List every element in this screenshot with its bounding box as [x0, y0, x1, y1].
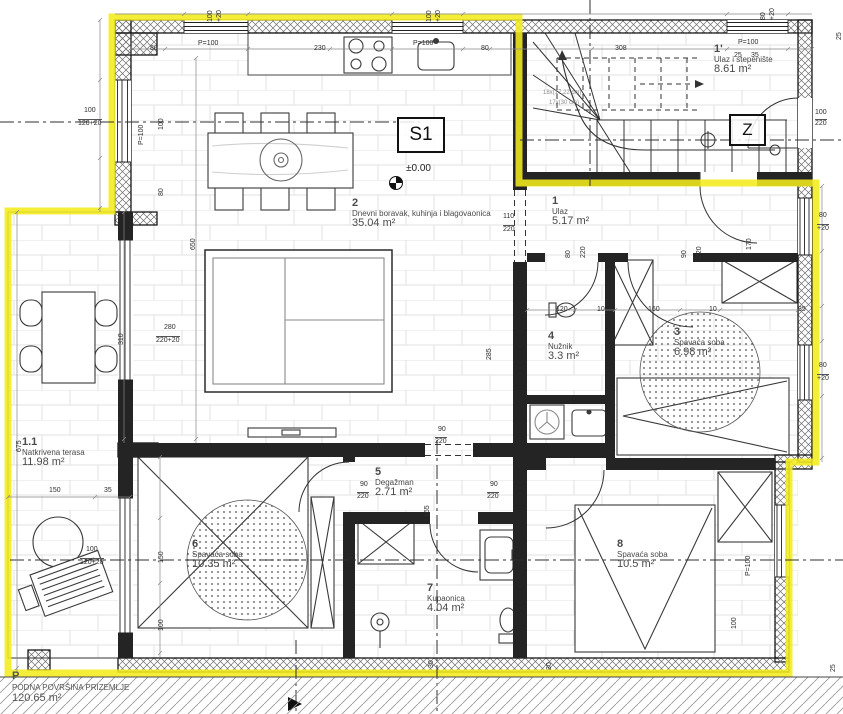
floor-summary: P PODNA POVRŠINA PRIZEMLJE 120.65 m² — [12, 670, 129, 704]
dim-text: 35 — [751, 52, 759, 59]
dim-text: 80 — [819, 212, 827, 219]
dim-text: +20 — [435, 10, 442, 22]
dim-text: P=100 — [198, 40, 218, 47]
dim-text: P=100 — [745, 556, 752, 576]
dim-text: P=100 — [138, 125, 145, 145]
dim-text: 90 — [438, 426, 446, 433]
dim-text: 80 — [760, 12, 767, 20]
room-label-bedroom3: 3Spavaća soba6.98 m² — [674, 327, 725, 358]
level-marker-icon — [390, 177, 403, 190]
room-label-ulaz: 1Ulaz5.17 m² — [552, 196, 589, 227]
dim-text: 150 — [158, 551, 165, 563]
window-right-2 — [798, 345, 812, 400]
dim-text: 80 — [481, 45, 489, 52]
level-label: ±0.00 — [406, 163, 431, 174]
sofa-icon — [205, 250, 392, 392]
dim-text: 100 — [426, 10, 433, 22]
dim-text: +20 — [216, 10, 223, 22]
dim-text: 110 — [503, 213, 514, 220]
dining-table-icon — [208, 113, 353, 210]
dim-text: 220 — [815, 119, 827, 127]
dim-text: 80 — [150, 45, 158, 52]
dim-text: 90 — [490, 481, 498, 488]
dim-text: 30 — [546, 662, 553, 670]
room-label-bedroom8: 8Spavaća soba10.5 m² — [617, 539, 668, 570]
dim-text: 220 — [580, 246, 587, 258]
dim-text: 80 — [819, 362, 827, 369]
room-label-bedroom6: 6Spavaća soba10.35 m² — [192, 539, 243, 570]
dim-text: 150 — [49, 487, 61, 494]
dim-text: 100 — [86, 546, 98, 553]
dim-text: 308 — [615, 45, 627, 52]
dim-text: 650 — [190, 238, 197, 250]
dim-text: 25 — [734, 52, 742, 59]
dim-text: 100 — [207, 10, 214, 22]
dim-text: 280 — [164, 324, 176, 331]
room-label-nuznik: 4Nužnik3.3 m² — [548, 331, 579, 362]
room-label-degazman: 5Degažman2.71 m² — [375, 467, 414, 498]
dim-text: 120+20 — [78, 119, 102, 127]
dim-text: 100 — [815, 109, 827, 116]
dim-text: 90 — [360, 481, 368, 488]
dim-text: 35 — [798, 306, 806, 313]
dim-text: +20 — [769, 8, 776, 20]
dim-text: P=100 — [413, 40, 433, 47]
stair-note-1: 18x(17,22 cm) — [543, 90, 581, 96]
dim-text: 90 — [681, 250, 688, 258]
dim-text: 220 — [503, 225, 515, 233]
dim-text: +20 — [817, 224, 829, 232]
room-label-kupaonica: 7Kupaonica4.04 m² — [427, 583, 465, 614]
room-label-stairwell: 1'Ulaz i stepenište8.61 m² — [714, 44, 773, 75]
dim-text: 120 — [556, 306, 568, 313]
dim-text: 285 — [486, 348, 493, 360]
dim-text: 310 — [118, 333, 125, 345]
laundry-tap-icon — [587, 410, 591, 414]
dim-text: 170 — [746, 238, 753, 250]
dim-text: 80 — [158, 188, 165, 196]
dim-text: 25 — [830, 664, 837, 672]
dim-text: P=100 — [738, 39, 758, 46]
washing-machine-icon — [530, 405, 564, 439]
stair-zone-text: Z — [742, 120, 752, 140]
dim-text: 25 — [836, 32, 843, 40]
dim-text: 80 — [565, 250, 572, 258]
window-terrace-room6 — [118, 498, 133, 633]
dim-text: 120+20 — [80, 558, 104, 566]
stair-note-2: 17x(30 cm) — [549, 100, 579, 106]
dim-text: 10 — [597, 306, 605, 313]
kitchen-counter-icon — [248, 33, 511, 75]
room-label-living: 2Dnevni boravak, kuhinja i blagovaonica3… — [352, 198, 491, 229]
dim-text: 220 — [357, 492, 369, 500]
bed-room8-icon — [575, 505, 715, 652]
dim-text: 675 — [16, 440, 23, 452]
dim-text: +20 — [817, 374, 829, 382]
dim-text: 30 — [428, 660, 435, 668]
window-top-3 — [727, 20, 788, 33]
dim-text: 220 — [696, 246, 703, 258]
unit-tag: S1 — [397, 117, 445, 153]
stair-zone-tag: Z — [729, 114, 766, 146]
dim-text: 100 — [84, 107, 96, 114]
dim-text: 220 — [435, 437, 447, 445]
floor-plan: S1 Z ±0.00 18x(17,22 cm) 17x(30 cm) 1'Ul… — [0, 0, 843, 714]
dim-text: 160 — [648, 306, 660, 313]
tv-icon — [282, 430, 300, 435]
dim-text: 100 — [158, 118, 165, 130]
dim-text: 220+20 — [156, 336, 180, 344]
dim-text: 10 — [709, 306, 717, 313]
dim-text: 100 — [158, 619, 165, 631]
window-left — [115, 80, 131, 162]
window-terrace-living — [118, 240, 133, 380]
dim-text: 165 — [424, 505, 431, 517]
room-label-terrace: 1.1Natkrivena terasa11.98 m² — [22, 437, 85, 468]
dim-text: 230 — [314, 45, 326, 52]
dim-text: 35 — [104, 487, 112, 494]
unit-tag-text: S1 — [409, 124, 432, 146]
window-right-1 — [798, 198, 812, 255]
dim-text: 220 — [487, 492, 499, 500]
bath-vanity-icon — [480, 530, 518, 580]
dim-text: 100 — [731, 617, 738, 629]
